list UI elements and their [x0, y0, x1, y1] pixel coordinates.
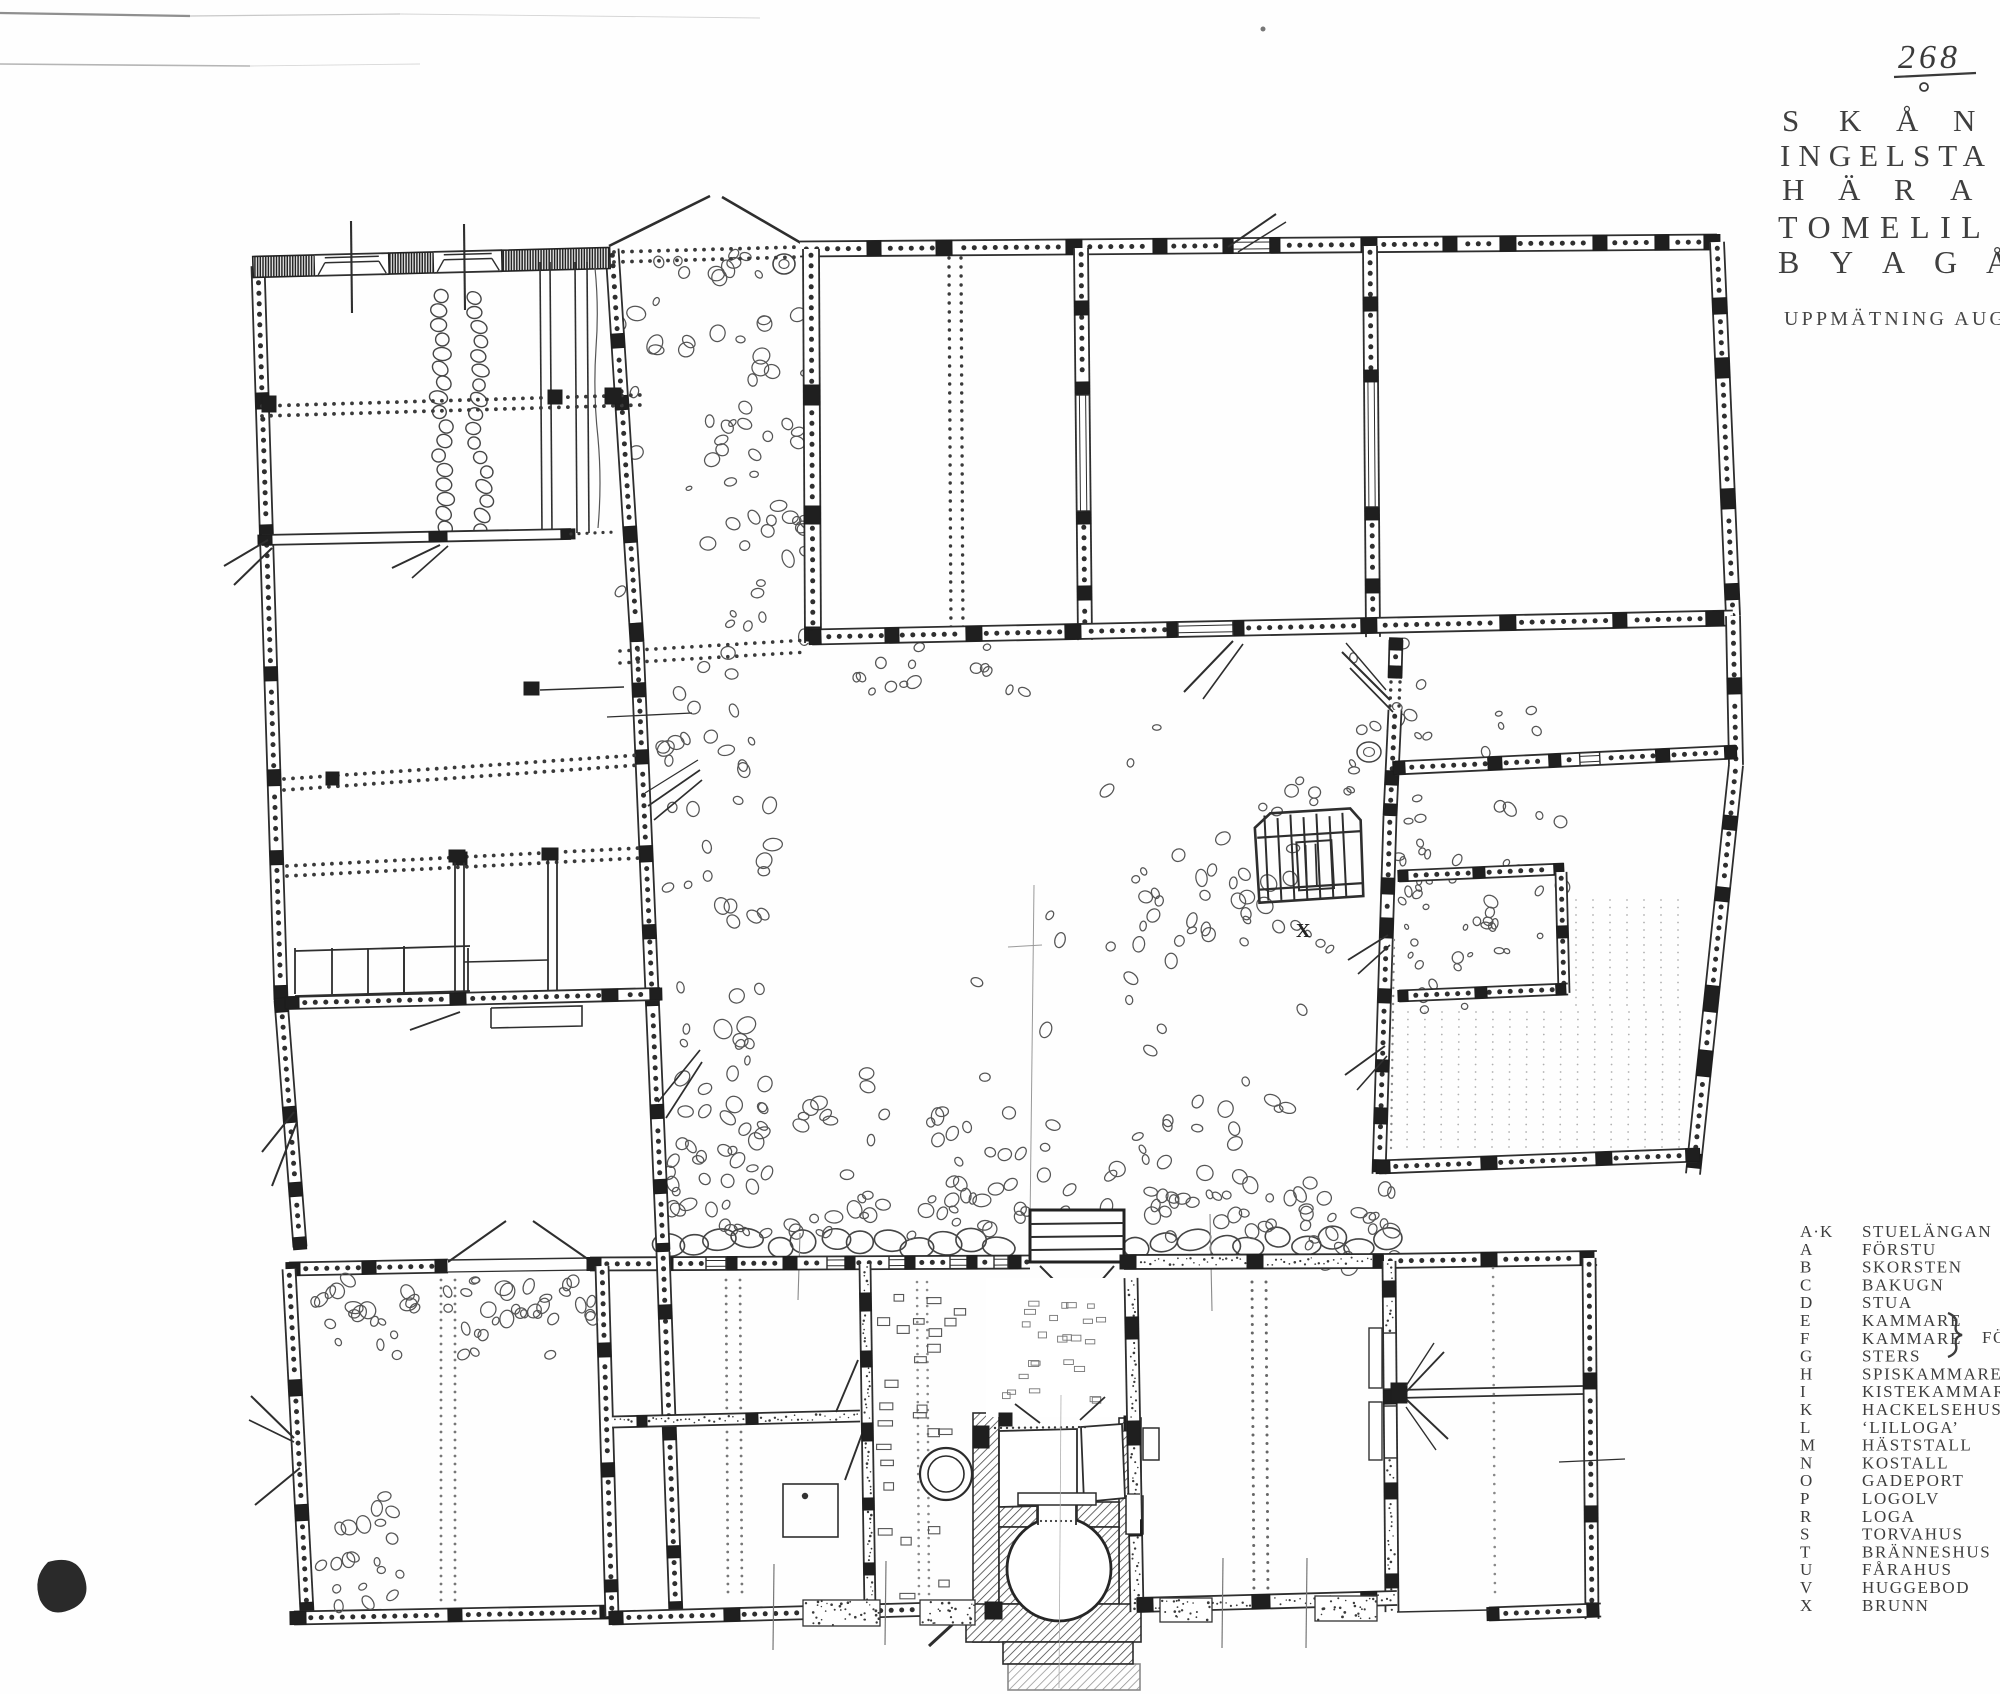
- svg-text:B: B: [1778, 244, 1799, 280]
- svg-text:BAKUGN: BAKUGN: [1862, 1275, 1944, 1294]
- svg-text:STUELÄNGAN: STUELÄNGAN: [1862, 1222, 1992, 1241]
- svg-text:N: N: [1953, 103, 1975, 138]
- svg-text:KOSTALL: KOSTALL: [1862, 1453, 1949, 1472]
- svg-text:C: C: [1800, 1275, 1812, 1294]
- svg-text:U: U: [1800, 1560, 1813, 1579]
- svg-text:Y: Y: [1830, 244, 1853, 280]
- svg-text:P: P: [1800, 1489, 1810, 1508]
- svg-text:HACKELSEHUS: HACKELSEHUS: [1862, 1400, 2000, 1419]
- svg-text:T: T: [1800, 1542, 1811, 1561]
- svg-text:FÖRSTU: FÖRSTU: [1862, 1240, 1937, 1259]
- svg-text:STUA: STUA: [1862, 1293, 1913, 1312]
- svg-text:LOGA: LOGA: [1862, 1507, 1916, 1526]
- svg-text:STERS: STERS: [1862, 1347, 1921, 1366]
- svg-text:O: O: [1800, 1471, 1813, 1490]
- svg-text:FÖRR: FÖRR: [1982, 1328, 2000, 1347]
- svg-text:X: X: [1800, 1596, 1813, 1615]
- svg-text:K: K: [1800, 1400, 1813, 1419]
- svg-text:UPPMÄTNING AUG: UPPMÄTNING AUG: [1784, 307, 2000, 330]
- svg-text:R: R: [1894, 172, 1915, 207]
- svg-text:L: L: [1800, 1418, 1811, 1437]
- svg-text:A: A: [1800, 1240, 1813, 1259]
- svg-text:TORVAHUS: TORVAHUS: [1862, 1525, 1964, 1544]
- svg-text:X: X: [1296, 920, 1311, 942]
- svg-text:GADEPORT: GADEPORT: [1862, 1471, 1964, 1490]
- svg-text:BRUNN: BRUNN: [1862, 1596, 1930, 1615]
- svg-text:F: F: [1800, 1329, 1810, 1348]
- svg-text:B: B: [1800, 1258, 1812, 1277]
- svg-text:G: G: [1800, 1347, 1813, 1366]
- svg-text:H: H: [1800, 1364, 1813, 1383]
- svg-text:H: H: [1782, 172, 1804, 207]
- svg-text:N: N: [1800, 1453, 1813, 1472]
- svg-text:E: E: [1800, 1311, 1811, 1330]
- svg-text:A: A: [1950, 172, 1973, 207]
- svg-text:A: A: [1882, 244, 1905, 280]
- svg-text:LOGOLV: LOGOLV: [1862, 1489, 1940, 1508]
- svg-text:TOMELIL: TOMELIL: [1778, 209, 1991, 245]
- svg-text:HUGGEBOD: HUGGEBOD: [1862, 1578, 1970, 1597]
- svg-text:INGELSTA: INGELSTA: [1780, 138, 1993, 173]
- svg-text:SKORSTEN: SKORSTEN: [1862, 1258, 1963, 1277]
- svg-text:KISTEKAMMARE: KISTEKAMMARE: [1862, 1382, 2000, 1401]
- svg-text:Ä: Ä: [1838, 172, 1861, 207]
- svg-text:R: R: [1800, 1507, 1812, 1526]
- svg-text:K: K: [1839, 103, 1862, 138]
- svg-text:KAMMARE: KAMMARE: [1862, 1329, 1962, 1348]
- svg-text:S: S: [1800, 1525, 1810, 1544]
- svg-text:FÅRAHUS: FÅRAHUS: [1862, 1560, 1953, 1579]
- svg-text:‘LILLOGA’: ‘LILLOGA’: [1862, 1418, 1959, 1437]
- svg-text:M: M: [1800, 1436, 1816, 1455]
- svg-text:HÄSTSTALL: HÄSTSTALL: [1862, 1436, 1972, 1455]
- svg-text:V: V: [1800, 1578, 1813, 1597]
- svg-text:Å: Å: [1986, 244, 2000, 280]
- svg-text:I: I: [1800, 1382, 1807, 1401]
- svg-text:BRÄNNESHUS: BRÄNNESHUS: [1862, 1542, 1991, 1561]
- svg-text:S: S: [1782, 103, 1799, 138]
- svg-text:A·K: A·K: [1800, 1222, 1833, 1241]
- svg-text:Å: Å: [1896, 103, 1919, 138]
- svg-text:SPISKAMMARE: SPISKAMMARE: [1862, 1364, 2000, 1383]
- svg-text:D: D: [1800, 1293, 1813, 1312]
- svg-text:KAMMARE: KAMMARE: [1862, 1311, 1962, 1330]
- svg-text:268: 268: [1898, 39, 1961, 76]
- svg-text:G: G: [1934, 244, 1957, 280]
